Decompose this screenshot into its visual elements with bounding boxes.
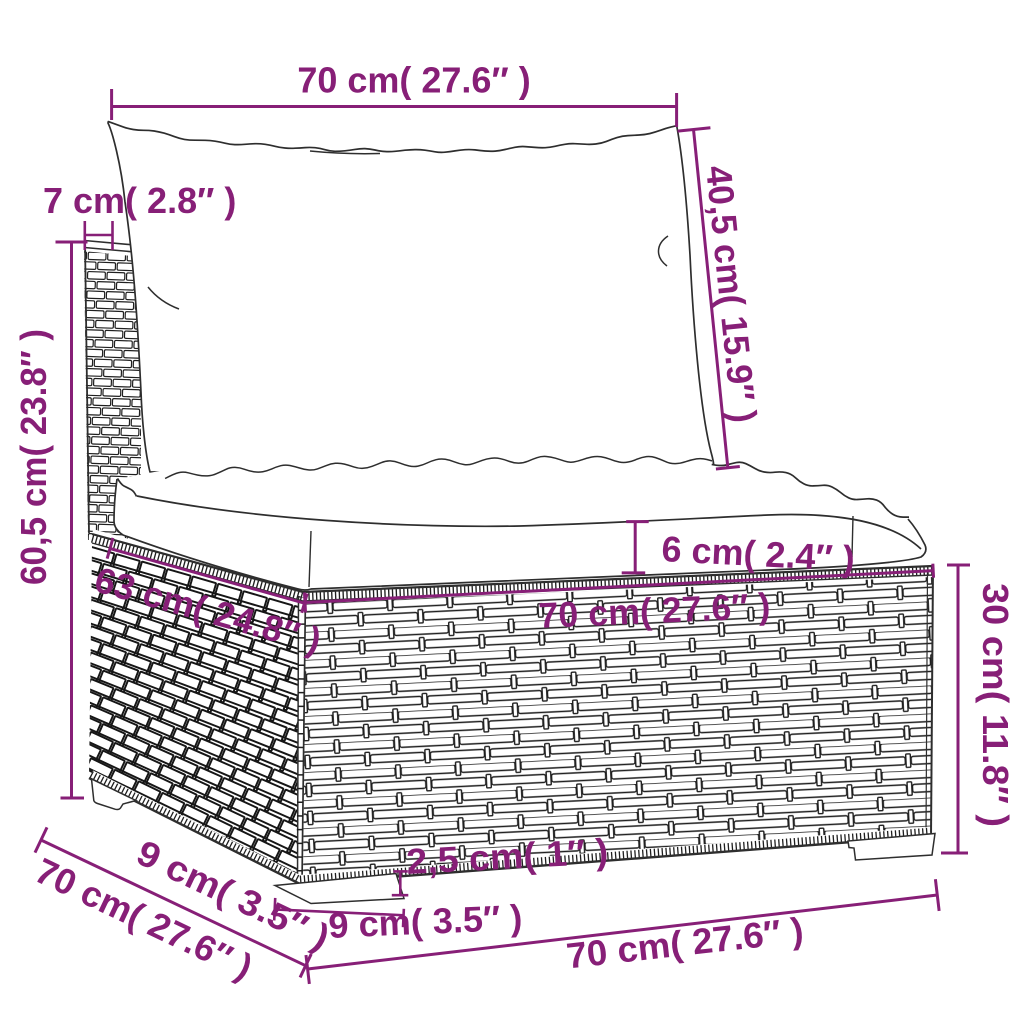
svg-text:7 cm( 2.8″ ): 7 cm( 2.8″ ) bbox=[43, 180, 236, 221]
svg-text:30 cm( 11.8″ ): 30 cm( 11.8″ ) bbox=[975, 583, 1016, 827]
svg-text:60,5 cm( 23.8″ ): 60,5 cm( 23.8″ ) bbox=[13, 329, 54, 585]
svg-text:9 cm( 3.5″ ): 9 cm( 3.5″ ) bbox=[328, 897, 524, 946]
svg-text:70 cm( 27.6″ ): 70 cm( 27.6″ ) bbox=[297, 60, 530, 101]
